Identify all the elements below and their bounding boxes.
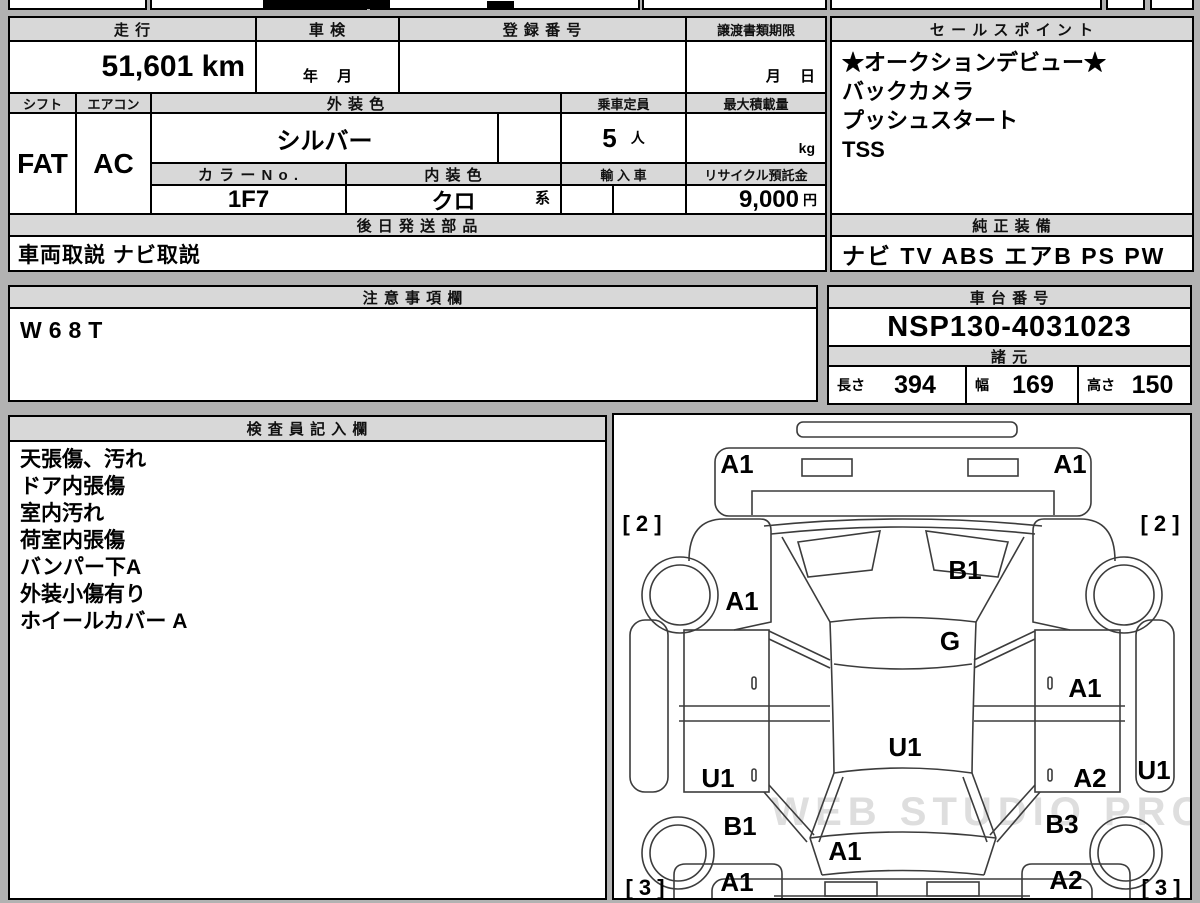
damage-label: U1 xyxy=(1137,755,1170,785)
registration-value xyxy=(398,40,687,94)
damage-label: B1 xyxy=(948,555,981,585)
spec-height: 高さ 150 xyxy=(1077,365,1192,405)
import-value-cell xyxy=(560,184,614,215)
sales-points-list: ★オークションデビュー★バックカメラプッシュスタートTSS xyxy=(830,40,1194,215)
length-label: 長さ xyxy=(829,375,865,395)
car-diagram-svg: WEB STUDIO PRO xyxy=(614,415,1190,898)
interior-color-text: クロ xyxy=(431,184,475,216)
notes-header: 注 意 事 項 欄 xyxy=(8,285,818,309)
cutoff-row-cell xyxy=(642,0,827,10)
damage-label: A1 xyxy=(1053,449,1086,479)
list-line: プッシュスタート xyxy=(842,106,1182,135)
damage-label: A1 xyxy=(828,836,861,866)
transfer-deadline-value: 月 日 xyxy=(685,40,827,94)
damage-label: [ 2 ] xyxy=(622,511,661,536)
equipment-header: 純 正 装 備 xyxy=(830,213,1194,237)
height-label: 高さ xyxy=(1079,375,1115,395)
cutoff-text-fragment xyxy=(487,1,514,8)
transfer-deadline-header: 譲渡書類期限 xyxy=(685,16,827,42)
later-parts-value: 車両取説 ナビ取説 xyxy=(8,235,827,272)
damage-label: A1 xyxy=(720,449,753,479)
damage-label: U1 xyxy=(701,763,734,793)
list-line: 荷室内張傷 xyxy=(20,527,595,554)
specs-header: 諸 元 xyxy=(827,345,1192,367)
color-no-header: カ ラ ー N o . xyxy=(150,162,347,186)
damage-label: [ 3 ] xyxy=(1141,875,1180,898)
list-line: ドア内張傷 xyxy=(20,473,595,500)
list-line: ホイールカバー A xyxy=(20,608,595,635)
auction-sheet: 走 行 車 検 登 録 番 号 譲渡書類期限 51,601 km 年 月 月 日… xyxy=(0,0,1200,900)
damage-label: A1 xyxy=(720,867,753,897)
mileage-header: 走 行 xyxy=(8,16,257,42)
width-label: 幅 xyxy=(967,375,989,395)
list-line: バックカメラ xyxy=(842,77,1182,106)
damage-label: A1 xyxy=(1068,673,1101,703)
capacity-unit: 人 xyxy=(631,128,645,148)
damage-label: A2 xyxy=(1049,865,1082,895)
damage-label: [ 2 ] xyxy=(1140,511,1179,536)
list-line: 天張傷、汚れ xyxy=(20,446,595,473)
damage-label: A2 xyxy=(1073,763,1106,793)
exterior-color-value: シルバー xyxy=(150,112,499,164)
damage-label: A1 xyxy=(725,586,758,616)
list-line: 室内汚れ xyxy=(20,500,595,527)
aircon-header: エアコン xyxy=(75,92,152,114)
interior-color-value: クロ 系 xyxy=(345,184,562,215)
cutoff-text-fragment xyxy=(263,0,390,9)
registration-header: 登 録 番 号 xyxy=(398,16,687,42)
list-line: ★オークションデビュー★ xyxy=(842,48,1182,77)
spec-width: 幅 169 xyxy=(965,365,1079,405)
equipment-value: ナビ TV ABS エアB PS PW xyxy=(830,235,1194,272)
inspection-value: 年 月 xyxy=(255,40,400,94)
recycle-unit: 円 xyxy=(803,190,817,210)
cutoff-row-cell xyxy=(1106,0,1145,10)
spec-length: 長さ 394 xyxy=(827,365,967,405)
capacity-value: 5 人 xyxy=(560,112,687,164)
damage-label: [ 3 ] xyxy=(625,875,664,898)
cutoff-row-cell xyxy=(1150,0,1194,10)
interior-color-header: 内 装 色 xyxy=(345,162,562,186)
damage-label: G xyxy=(940,626,960,656)
inspection-header: 車 検 xyxy=(255,16,400,42)
notes-value: W68T xyxy=(8,307,818,402)
sales-points-header: セ ー ル ス ポ イ ン ト xyxy=(830,16,1194,42)
capacity-number: 5 xyxy=(602,123,616,154)
cutoff-row-cell xyxy=(8,0,147,10)
chassis-value: NSP130-4031023 xyxy=(827,307,1192,347)
exterior-color-header: 外 装 色 xyxy=(150,92,562,114)
shift-header: シフト xyxy=(8,92,77,114)
damage-label: U1 xyxy=(888,732,921,762)
recycle-header: リサイクル預託金 xyxy=(685,162,827,186)
height-value: 150 xyxy=(1115,371,1190,400)
width-value: 169 xyxy=(989,371,1077,400)
inspector-notes-list: 天張傷、汚れドア内張傷室内汚れ荷室内張傷バンパー下A外装小傷有りホイールカバー … xyxy=(8,440,607,900)
import-header: 輸 入 車 xyxy=(560,162,687,186)
list-line: TSS xyxy=(842,135,1182,164)
list-line: 外装小傷有り xyxy=(20,581,595,608)
chassis-header: 車 台 番 号 xyxy=(827,285,1192,309)
max-load-header: 最大積載量 xyxy=(685,92,827,114)
damage-label: B3 xyxy=(1045,809,1078,839)
list-line: バンパー下A xyxy=(20,554,595,581)
exterior-color-extra-cell xyxy=(497,112,562,164)
mileage-value: 51,601 km xyxy=(8,40,257,94)
length-value: 394 xyxy=(865,371,965,400)
capacity-header: 乗車定員 xyxy=(560,92,687,114)
inspector-header: 検 査 員 記 入 欄 xyxy=(8,415,607,442)
car-diagram-box: WEB STUDIO PRO xyxy=(612,413,1192,900)
max-load-value: kg xyxy=(685,112,827,164)
import-value-cell xyxy=(612,184,687,215)
later-parts-header: 後 日 発 送 部 品 xyxy=(8,213,827,237)
interior-color-suffix: 系 xyxy=(535,187,550,208)
cutoff-row-cell xyxy=(830,0,1102,10)
damage-label: B1 xyxy=(723,811,756,841)
color-no-value: 1F7 xyxy=(150,184,347,215)
shift-value: FAT xyxy=(8,112,77,215)
recycle-amount: 9,000 xyxy=(739,186,799,214)
recycle-value: 9,000 円 xyxy=(685,184,827,215)
aircon-value: AC xyxy=(75,112,152,215)
